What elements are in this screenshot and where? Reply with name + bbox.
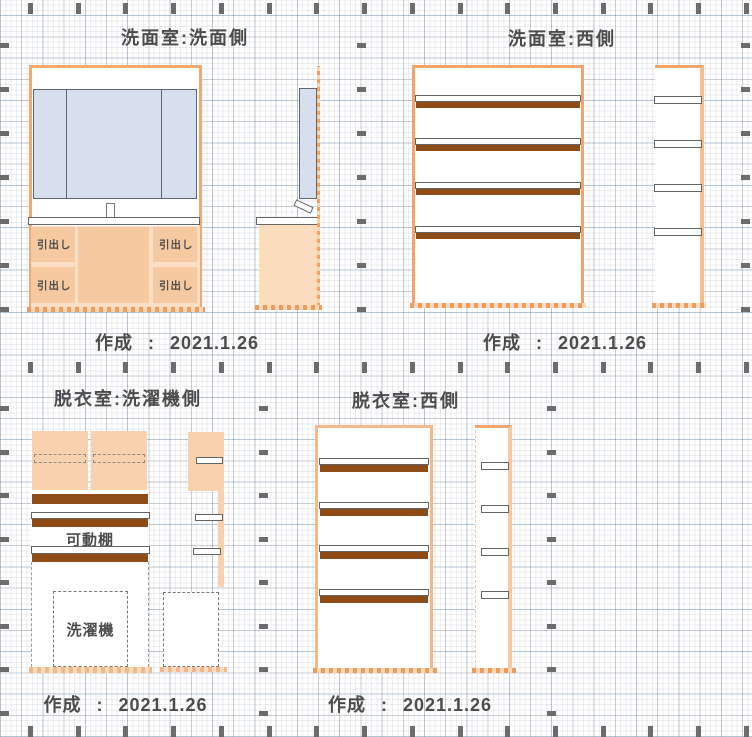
open-side-line bbox=[148, 562, 149, 667]
open-side-line bbox=[31, 562, 32, 667]
cabinet-door-panel bbox=[78, 227, 149, 303]
grid-tick bbox=[259, 450, 268, 455]
floor-line bbox=[255, 305, 322, 310]
shelf-side bbox=[481, 591, 509, 599]
shelf-front bbox=[32, 494, 148, 504]
grid-tick bbox=[259, 711, 268, 716]
grid-tick bbox=[123, 726, 128, 737]
grid-tick bbox=[171, 3, 176, 14]
grid-tick bbox=[547, 450, 556, 455]
grid-tick bbox=[741, 87, 750, 92]
washing-machine-outline: 洗濯機 bbox=[53, 591, 128, 667]
dressing-washer-title: 脱衣室:洗濯機側 bbox=[28, 385, 228, 411]
grid-tick bbox=[0, 711, 9, 716]
drawer-label: 引出し bbox=[153, 237, 194, 252]
grid-tick bbox=[410, 362, 415, 373]
grid-tick bbox=[741, 175, 750, 180]
grid-tick bbox=[744, 362, 749, 373]
shelf-front bbox=[32, 519, 148, 527]
created-date: 2021.1.26 bbox=[558, 333, 647, 354]
created-label: 作成 bbox=[95, 329, 133, 355]
grid-tick bbox=[362, 362, 367, 373]
grid-tick bbox=[259, 406, 268, 411]
grid-tick bbox=[76, 726, 81, 737]
created-label: 作成 bbox=[328, 691, 366, 717]
created-date: 2021.1.26 bbox=[403, 695, 492, 716]
grid-tick bbox=[458, 362, 463, 373]
drawer-label: 引出し bbox=[31, 278, 72, 293]
grid-tick bbox=[553, 362, 558, 373]
shelf-board bbox=[31, 546, 150, 554]
shelf-board bbox=[319, 502, 429, 509]
grid-tick bbox=[28, 3, 33, 14]
shelf-front bbox=[320, 509, 428, 516]
mirror-divider-right bbox=[161, 90, 162, 198]
shelf-board bbox=[319, 458, 429, 465]
floor-line bbox=[410, 303, 586, 308]
grid-tick bbox=[547, 667, 556, 672]
created-date: 2021.1.26 bbox=[118, 695, 207, 716]
created-label: 作成 bbox=[43, 691, 81, 717]
grid-tick bbox=[553, 3, 558, 14]
floor-line bbox=[313, 668, 437, 673]
created-date-line: 作成 : 2021.1.26 bbox=[465, 329, 665, 355]
grid-tick bbox=[547, 624, 556, 629]
drawer: 引出し bbox=[31, 227, 75, 262]
grid-tick bbox=[410, 726, 415, 737]
grid-tick bbox=[259, 580, 268, 585]
created-date-line: 作成 : 2021.1.26 bbox=[310, 691, 510, 717]
grid-tick bbox=[696, 362, 701, 373]
door-handle-outline bbox=[34, 454, 86, 463]
faucet-outline bbox=[106, 203, 115, 217]
shelf-side bbox=[195, 514, 223, 521]
created-separator: : bbox=[381, 695, 388, 716]
shelf-front bbox=[32, 554, 148, 562]
grid-tick bbox=[505, 726, 510, 737]
grid-tick bbox=[741, 219, 750, 224]
grid-tick bbox=[123, 362, 128, 373]
grid-tick bbox=[362, 726, 367, 737]
shelf-side bbox=[481, 505, 509, 513]
drawer: 引出し bbox=[153, 267, 197, 303]
grid-tick bbox=[0, 667, 9, 672]
grid-tick bbox=[357, 87, 366, 92]
shelf-front bbox=[416, 233, 580, 239]
grid-tick bbox=[601, 3, 606, 14]
grid-tick bbox=[0, 493, 9, 498]
grid-tick bbox=[219, 3, 224, 14]
shelf-side bbox=[193, 548, 221, 555]
grid-tick bbox=[0, 580, 9, 585]
grid-tick bbox=[357, 175, 366, 180]
shelf-board bbox=[415, 138, 581, 145]
grid-tick bbox=[744, 726, 749, 737]
grid-tick bbox=[259, 624, 268, 629]
grid-tick bbox=[0, 406, 9, 411]
shelf-front bbox=[320, 465, 428, 472]
grid-tick bbox=[0, 263, 9, 268]
grid-tick bbox=[601, 362, 606, 373]
vanity-counter bbox=[28, 217, 200, 225]
grid-tick bbox=[362, 3, 367, 14]
grid-tick bbox=[547, 711, 556, 716]
created-date: 2021.1.26 bbox=[170, 333, 259, 354]
grid-tick bbox=[648, 3, 653, 14]
created-label: 作成 bbox=[483, 329, 521, 355]
washroom-vanity-title: 洗面室:洗面側 bbox=[35, 24, 335, 50]
dressing-west-title: 脱衣室:西側 bbox=[306, 387, 506, 413]
grid-tick bbox=[696, 3, 701, 14]
grid-tick bbox=[259, 493, 268, 498]
grid-tick bbox=[0, 450, 9, 455]
grid-tick bbox=[601, 726, 606, 737]
grid-tick bbox=[314, 362, 319, 373]
door-handle-outline bbox=[93, 454, 145, 463]
grid-tick bbox=[171, 362, 176, 373]
grid-tick bbox=[314, 3, 319, 14]
grid-tick bbox=[696, 726, 701, 737]
shelf-side bbox=[654, 184, 702, 192]
grid-tick bbox=[547, 406, 556, 411]
grid-tick bbox=[553, 726, 558, 737]
grid-tick bbox=[259, 667, 268, 672]
created-date-line: 作成 : 2021.1.26 bbox=[23, 691, 228, 717]
grid-tick bbox=[0, 624, 9, 629]
elevation-drawing-canvas: 洗面室:洗面側 引出し 引出し 引出し 引出し 作成 : 2021.1.26 洗… bbox=[0, 0, 752, 737]
grid-tick bbox=[357, 131, 366, 136]
floor-line bbox=[652, 303, 706, 308]
shelf-side bbox=[654, 140, 702, 148]
shelf-front bbox=[416, 145, 580, 151]
shelf-side bbox=[654, 96, 702, 104]
grid-tick bbox=[648, 362, 653, 373]
mirror-cabinet bbox=[33, 89, 197, 199]
grid-tick bbox=[357, 307, 366, 312]
floor-line bbox=[472, 668, 516, 673]
created-separator: : bbox=[148, 333, 155, 354]
grid-tick bbox=[219, 362, 224, 373]
grid-tick bbox=[744, 3, 749, 14]
grid-tick bbox=[0, 43, 9, 48]
floor-line bbox=[29, 667, 152, 673]
grid-tick bbox=[547, 580, 556, 585]
grid-tick bbox=[267, 362, 272, 373]
grid-tick bbox=[28, 726, 33, 737]
shelf-front bbox=[416, 189, 580, 195]
grid-tick bbox=[0, 219, 9, 224]
grid-tick bbox=[357, 263, 366, 268]
side-wall-strip bbox=[218, 491, 224, 587]
grid-tick bbox=[0, 537, 9, 542]
shelf-side bbox=[654, 228, 702, 236]
created-separator: : bbox=[536, 333, 543, 354]
grid-tick bbox=[741, 263, 750, 268]
grid-tick bbox=[547, 493, 556, 498]
drawer-label: 引出し bbox=[153, 278, 194, 293]
created-date-line: 作成 : 2021.1.26 bbox=[77, 329, 277, 355]
shelf-board bbox=[415, 182, 581, 189]
shelf-front bbox=[320, 596, 428, 603]
shelf-board bbox=[31, 512, 150, 519]
grid-tick bbox=[357, 43, 366, 48]
shelf-side bbox=[196, 457, 223, 464]
grid-tick bbox=[741, 131, 750, 136]
drawer: 引出し bbox=[153, 227, 197, 262]
counter-side-view bbox=[256, 217, 320, 225]
grid-tick bbox=[648, 726, 653, 737]
grid-tick bbox=[267, 726, 272, 737]
washing-machine-label: 洗濯機 bbox=[66, 619, 114, 640]
shelf-board bbox=[319, 545, 429, 552]
shelf-board bbox=[415, 95, 581, 102]
grid-tick bbox=[547, 537, 556, 542]
mirror-side-view bbox=[299, 88, 317, 199]
shelf-board bbox=[319, 589, 429, 596]
wall-line bbox=[317, 66, 320, 307]
grid-tick bbox=[267, 3, 272, 14]
grid-tick bbox=[123, 3, 128, 14]
grid-tick bbox=[314, 726, 319, 737]
shelf-side bbox=[481, 462, 509, 470]
grid-tick bbox=[28, 362, 33, 373]
shelf-front bbox=[320, 552, 428, 559]
drawer-label: 引出し bbox=[31, 237, 72, 252]
washroom-west-title: 洗面室:西側 bbox=[462, 25, 662, 51]
grid-tick bbox=[0, 175, 9, 180]
drawer: 引出し bbox=[31, 267, 75, 303]
shelf-side bbox=[481, 548, 509, 556]
grid-tick bbox=[76, 362, 81, 373]
grid-tick bbox=[410, 3, 415, 14]
grid-tick bbox=[505, 362, 510, 373]
mirror-divider-left bbox=[66, 90, 67, 198]
grid-tick bbox=[741, 307, 750, 312]
washing-machine-side-outline bbox=[163, 592, 219, 667]
grid-tick bbox=[741, 43, 750, 48]
created-separator: : bbox=[96, 695, 103, 716]
grid-tick bbox=[0, 87, 9, 92]
floor-line bbox=[160, 667, 227, 672]
grid-tick bbox=[76, 3, 81, 14]
shelf-board bbox=[415, 226, 581, 233]
grid-tick bbox=[458, 726, 463, 737]
tilted-lid bbox=[293, 199, 313, 213]
grid-tick bbox=[458, 3, 463, 14]
grid-tick bbox=[357, 219, 366, 224]
grid-tick bbox=[0, 307, 9, 312]
shelf-front bbox=[416, 102, 580, 108]
grid-tick bbox=[259, 537, 268, 542]
grid-tick bbox=[219, 726, 224, 737]
floor-line bbox=[27, 307, 205, 312]
base-cabinet-side-view bbox=[259, 225, 318, 306]
grid-tick bbox=[0, 131, 9, 136]
grid-tick bbox=[505, 3, 510, 14]
grid-tick bbox=[171, 726, 176, 737]
